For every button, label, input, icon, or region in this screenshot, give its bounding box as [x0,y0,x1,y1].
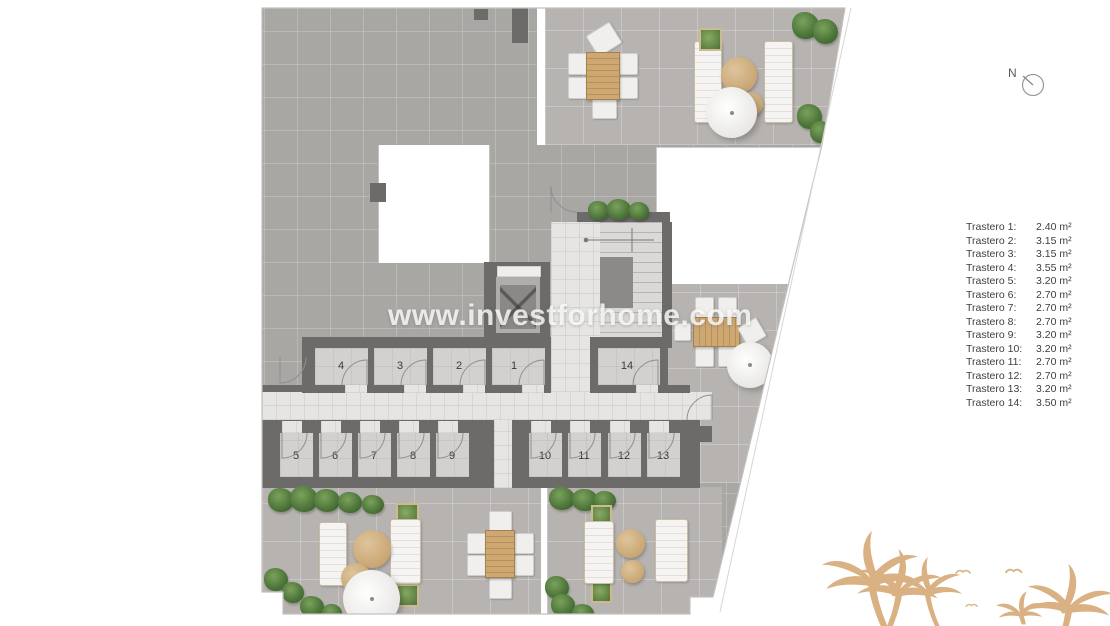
door-opening [463,385,485,393]
door-opening [345,385,367,393]
chair [617,53,638,75]
legend-room-label: Trastero 3: [966,248,1036,262]
planter-box [699,28,722,51]
hedge-bush [362,495,384,514]
bush [300,596,324,617]
planter-box [591,582,612,603]
door-opening [636,385,658,393]
bush [322,604,342,622]
hedge-bush [338,492,362,513]
room-label-4: 4 [338,360,344,372]
door-opening [531,421,551,433]
legend-area-value: 2.70 m² [1036,356,1080,370]
door-opening [399,421,419,433]
legend-area-value: 2.70 m² [1036,370,1080,384]
chair [489,511,512,532]
sun-lounger [764,41,793,123]
round-table [616,529,645,558]
legend-row: Trastero 3:3.15 m² [966,248,1080,262]
bush [629,202,649,220]
room-label-8: 8 [410,450,416,462]
legend-row: Trastero 8:2.70 m² [966,316,1080,330]
room-label-11: 11 [578,450,589,462]
chair [617,77,638,99]
room-1-floor [492,348,545,385]
legend-row: Trastero 6:2.70 m² [966,289,1080,303]
legend-row: Trastero 2:3.15 m² [966,235,1080,249]
chair [514,555,534,576]
separator-strip [537,8,545,145]
bush [810,121,832,143]
watermark: www.investforhome.com [388,299,728,333]
door-opening [610,421,630,433]
chair [592,97,617,119]
legend-area-value: 3.20 m² [1036,343,1080,357]
roof-chimney [512,7,528,43]
legend-room-label: Trastero 10: [966,343,1036,357]
door-opening [438,421,458,433]
room-label-1: 1 [511,360,517,372]
legend-area-value: 2.70 m² [1036,302,1080,316]
legend-room-label: Trastero 1: [966,221,1036,235]
corridor-floor [262,392,712,420]
bush [813,19,838,44]
room-label-7: 7 [371,450,377,462]
legend-row: Trastero 5:3.20 m² [966,275,1080,289]
birds-graphic [956,570,1021,607]
legend-room-label: Trastero 12: [966,370,1036,384]
door-opening [570,421,590,433]
legend-area-value: 3.15 m² [1036,248,1080,262]
bush [588,201,609,220]
hedge-bush [314,489,340,512]
round-table [621,560,644,583]
door-opening [360,421,380,433]
legend-area-value: 3.20 m² [1036,275,1080,289]
bush [572,604,594,623]
legend-row: Trastero 7:2.70 m² [966,302,1080,316]
room-label-13: 13 [657,450,669,462]
roof-void-left [378,145,490,263]
corridor-left-wall [262,385,302,392]
legend-area-value: 2.40 m² [1036,221,1080,235]
roof-void-right [656,147,827,284]
chair [467,533,487,554]
legend-area-value: 3.20 m² [1036,329,1080,343]
legend-row: Trastero 4:3.55 m² [966,262,1080,276]
parasol [706,87,757,138]
legend-row: Trastero 14:3.50 m² [966,397,1080,411]
north-compass-icon [1023,75,1044,96]
legend-row: Trastero 13:3.20 m² [966,383,1080,397]
bush [607,199,631,220]
door-opening [282,421,302,433]
legend-list: Trastero 1:2.40 m²Trastero 2:3.15 m²Tras… [966,221,1080,410]
legend-area-value: 3.15 m² [1036,235,1080,249]
legend-room-label: Trastero 5: [966,275,1036,289]
parasol [727,342,773,388]
legend-room-label: Trastero 11: [966,356,1036,370]
dining-table [586,52,620,100]
legend-area-value: 3.20 m² [1036,383,1080,397]
floor-plan-page: 4 3 2 1 14 5 6 7 8 9 10 11 12 13 [0,0,1110,626]
door-opening [522,385,544,393]
parasol [343,570,400,626]
north-label: N [1008,66,1017,80]
void-wall-stub [370,183,386,202]
elevator-ledge [497,266,541,277]
door-opening [321,421,341,433]
legend-room-label: Trastero 4: [966,262,1036,276]
legend-row: Trastero 12:2.70 m² [966,370,1080,384]
legend-room-label: Trastero 13: [966,383,1036,397]
sun-lounger [655,519,688,582]
room-label-3: 3 [397,360,403,372]
chair [695,346,714,367]
room-label-12: 12 [618,450,630,462]
wall-notch [700,426,712,442]
legend-area-value: 3.50 m² [1036,397,1080,411]
legend-room-label: Trastero 7: [966,302,1036,316]
legend-row: Trastero 1:2.40 m² [966,221,1080,235]
room-label-10: 10 [539,450,551,462]
room-label-5: 5 [293,450,299,462]
sun-lounger [584,521,614,584]
legend-room-label: Trastero 9: [966,329,1036,343]
legend-row: Trastero 10:3.20 m² [966,343,1080,357]
dining-table [485,530,515,578]
roof-vent [474,9,488,20]
chair [489,578,512,599]
legend-area-value: 2.70 m² [1036,289,1080,303]
palm-trees-graphic [822,531,1110,626]
legend-room-label: Trastero 8: [966,316,1036,330]
door-opening [649,421,669,433]
sun-lounger [390,519,421,584]
chair [467,555,487,576]
passage-floor [494,420,512,488]
legend-area-value: 2.70 m² [1036,316,1080,330]
legend-room-label: Trastero 6: [966,289,1036,303]
separator-strip [541,483,547,618]
room-label-6: 6 [332,450,338,462]
legend-row: Trastero 9:3.20 m² [966,329,1080,343]
chair [514,533,534,554]
legend-area-value: 3.55 m² [1036,262,1080,276]
legend-room-label: Trastero 2: [966,235,1036,249]
room-label-2: 2 [456,360,462,372]
legend-row: Trastero 11:2.70 m² [966,356,1080,370]
room-label-14: 14 [621,360,633,372]
door-opening [404,385,426,393]
legend-room-label: Trastero 14: [966,397,1036,411]
room-label-9: 9 [449,450,455,462]
